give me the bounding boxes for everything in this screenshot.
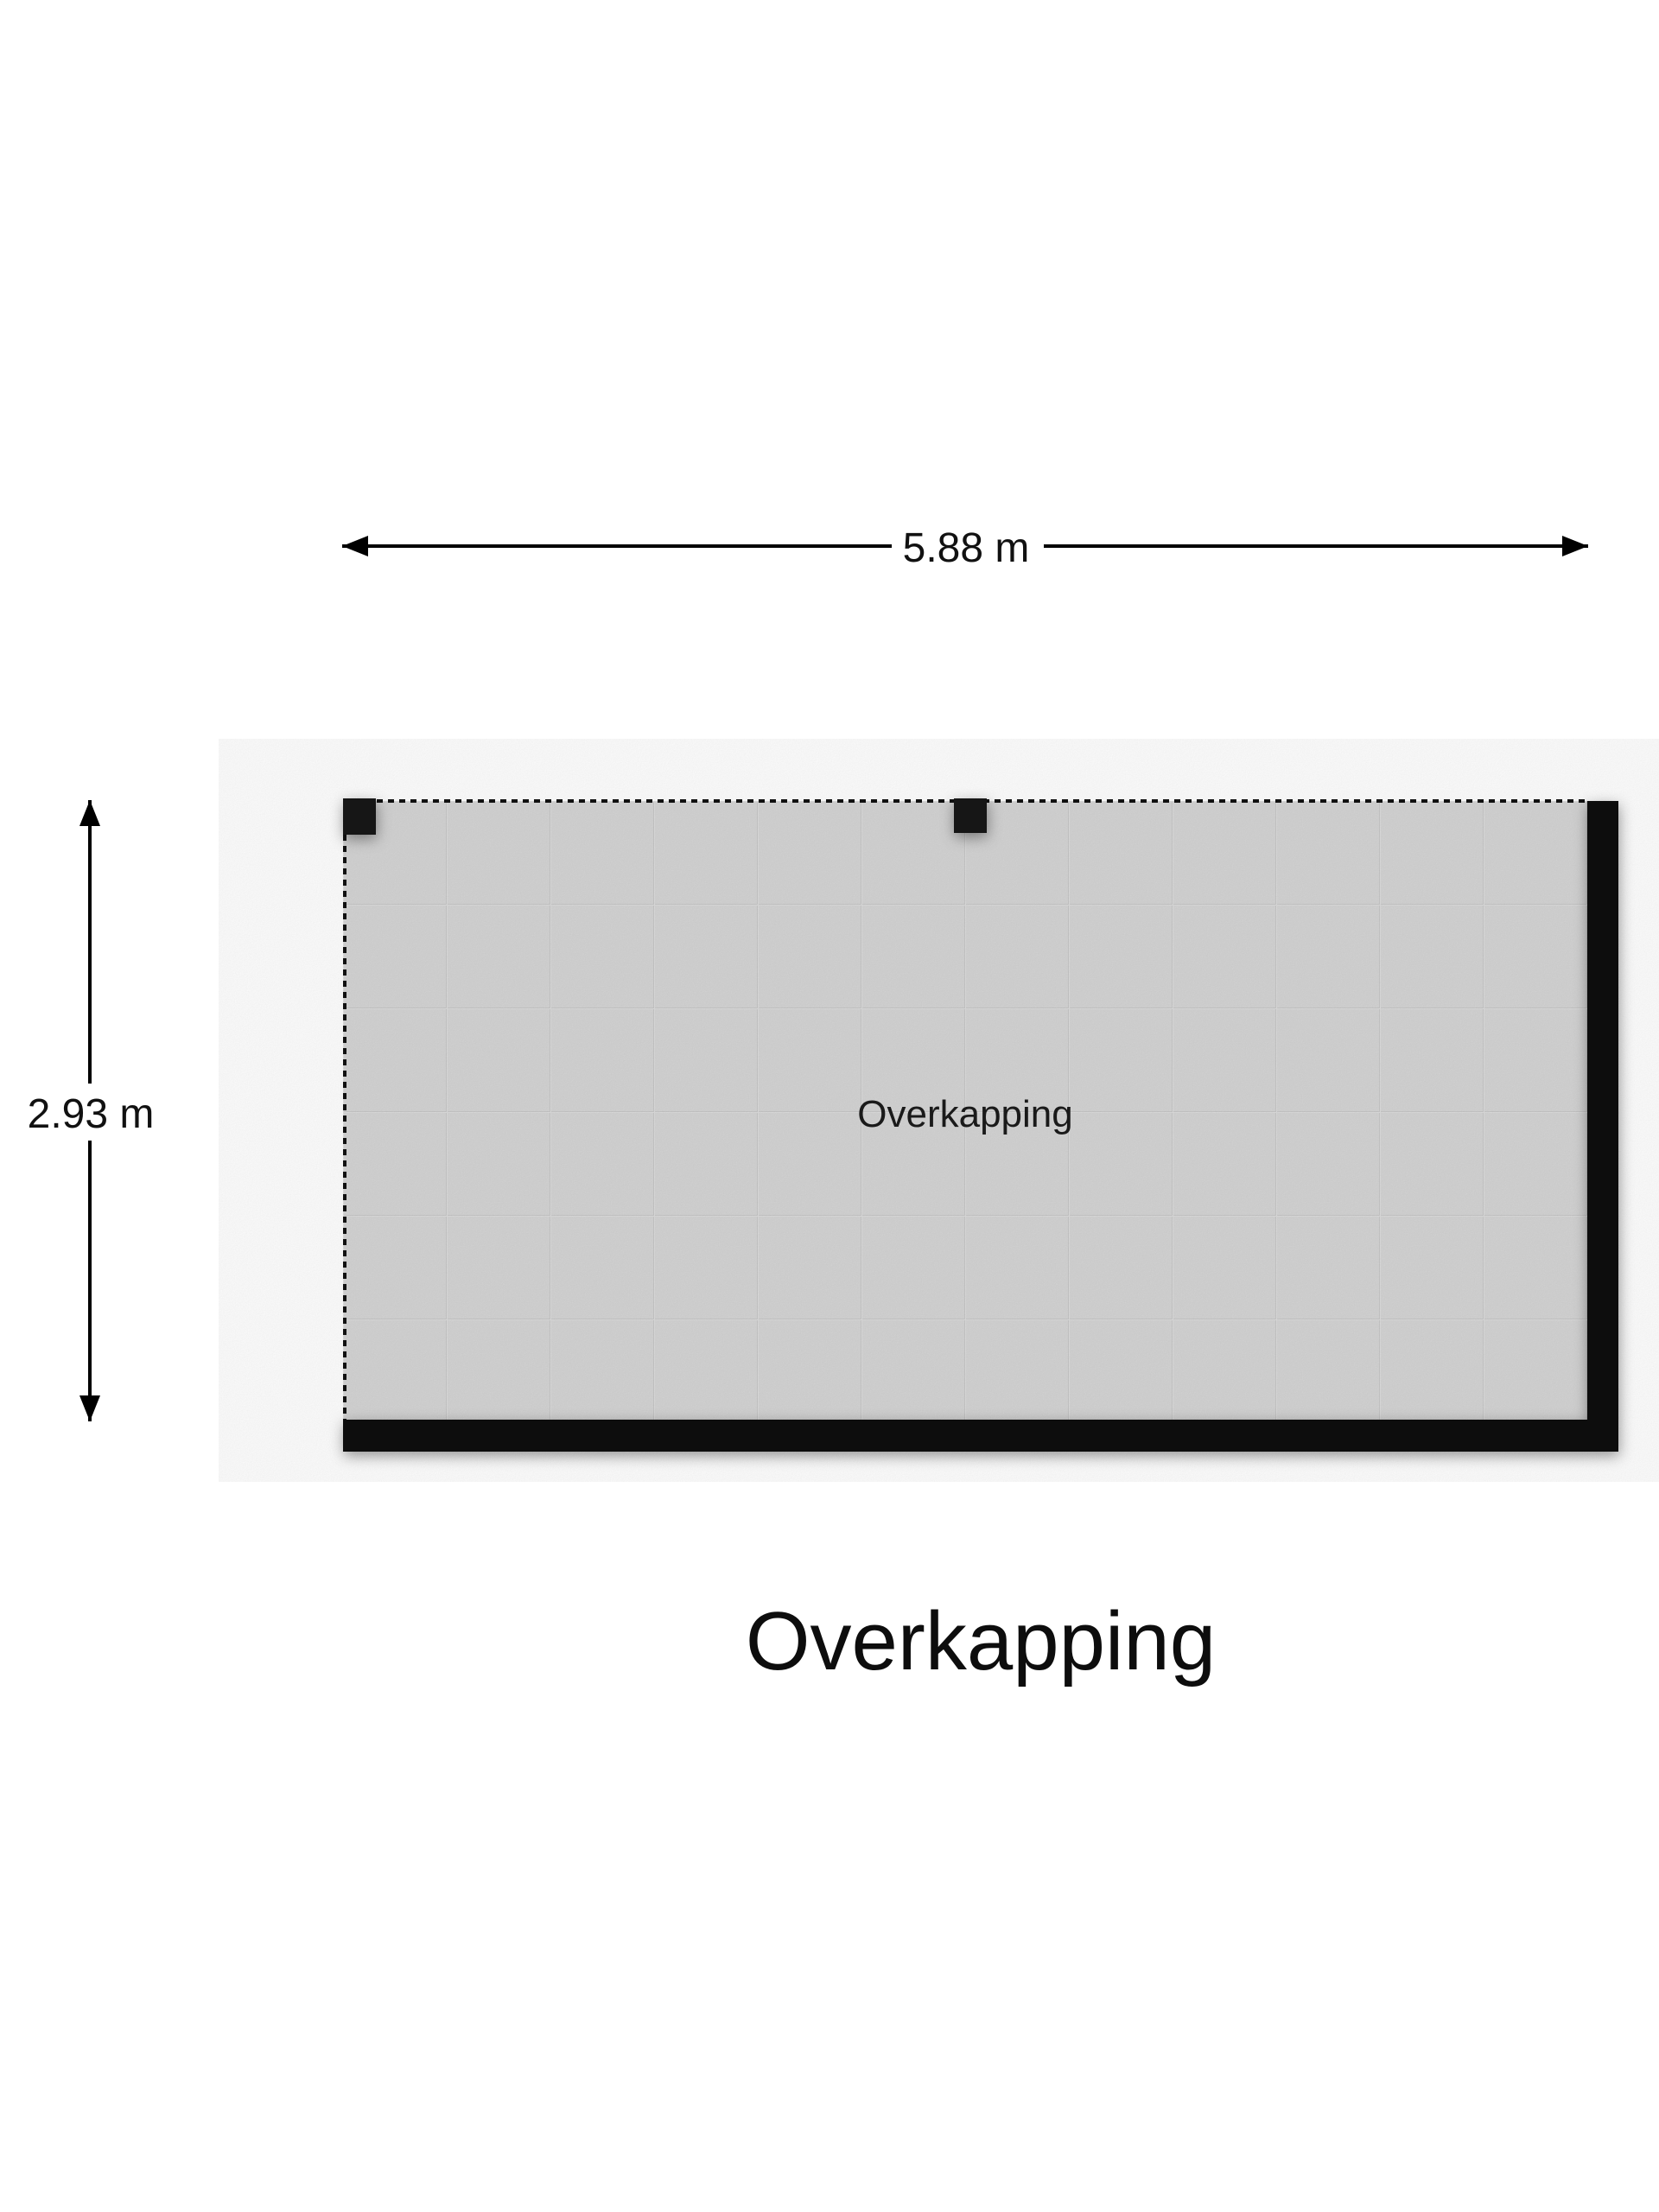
room-label: Overkapping (857, 1093, 1072, 1135)
wall-right (1587, 801, 1618, 1452)
plan-title: Overkapping (746, 1595, 1216, 1688)
room-overkapping: Overkapping (343, 798, 1618, 1452)
height-dimension-label: 2.93 m (28, 1091, 155, 1137)
floorplan-drawing: 5.88 m 2.93 m Overk (0, 0, 1659, 2212)
post-left (343, 798, 376, 835)
height-dimension: 2.93 m (19, 800, 162, 1421)
arrowhead-right-icon (1562, 536, 1588, 556)
floorplan-page: 5.88 m 2.93 m Overk (0, 0, 1659, 2212)
width-dimension: 5.88 m (342, 522, 1588, 572)
post-middle (954, 798, 987, 833)
width-dimension-label: 5.88 m (903, 525, 1030, 571)
arrowhead-left-icon (342, 536, 368, 556)
arrowhead-up-icon (79, 800, 100, 826)
wall-bottom (343, 1420, 1618, 1452)
arrowhead-down-icon (79, 1395, 100, 1421)
